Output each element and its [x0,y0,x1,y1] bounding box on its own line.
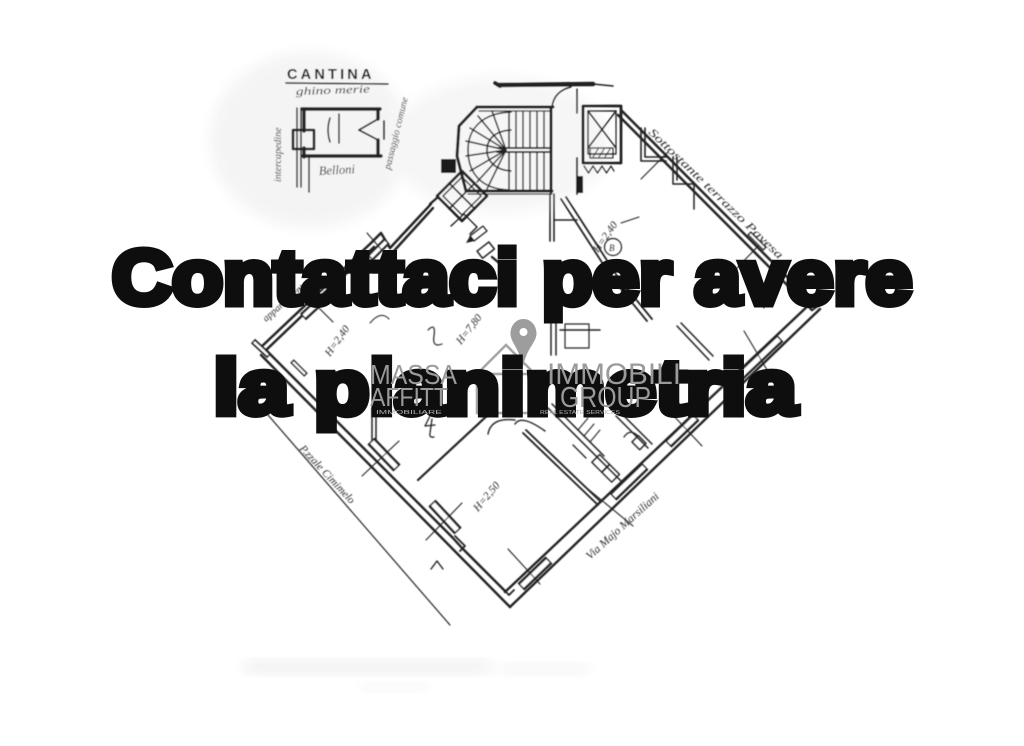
svg-text:CANTINA: CANTINA [287,67,375,83]
svg-text:Belloni: Belloni [318,162,355,178]
svg-text:IMMOBILIARE: IMMOBILIARE [376,410,443,416]
svg-text:REAL ESTATE SERVICES: REAL ESTATE SERVICES [540,410,621,416]
svg-text:AFFITT: AFFITT [370,382,448,412]
svg-text:la planimetria: la planimetria [214,345,798,431]
svg-text:intercapedine: intercapedine [273,127,284,182]
svg-text:Contattaci per avere: Contattaci per avere [112,235,912,321]
svg-text:H=2,50: H=2,50 [470,479,502,514]
svg-text:P.zzale Cimimelo: P.zzale Cimimelo [296,442,357,507]
svg-text:Via Majo Marsiliani: Via Majo Marsiliani [584,491,662,563]
